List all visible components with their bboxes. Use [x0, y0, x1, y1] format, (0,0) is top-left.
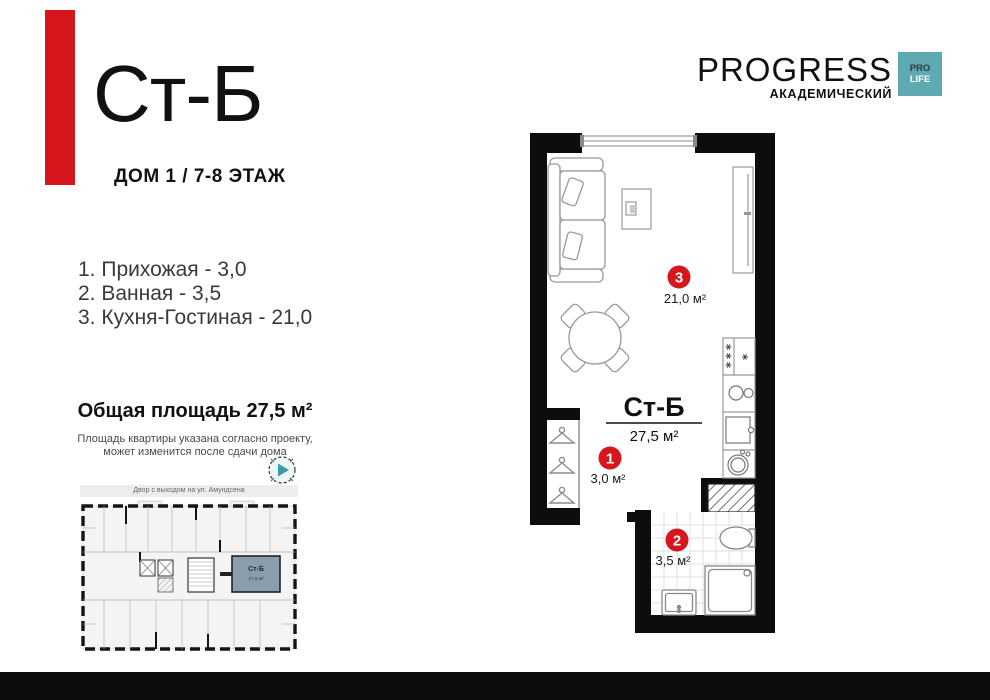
logo-brand: PROGRESS — [697, 54, 892, 86]
room-marker-3: 3 21,0 м² — [664, 266, 707, 307]
sofa-icon — [548, 158, 605, 282]
bath-sink-icon — [662, 590, 696, 615]
svg-text:1: 1 — [606, 451, 614, 468]
building-floor-subtitle: ДОМ 1 / 7-8 ЭТАЖ — [114, 166, 285, 188]
logo-subtitle: АКАДЕМИЧЕСКИЙ — [697, 87, 892, 101]
wardrobe-tv-icon — [733, 167, 753, 273]
kitchen-counter-icon — [723, 338, 755, 478]
room-list-item: 2. Ванная - 3,5 — [78, 282, 312, 306]
room-area-3: 21,0 м² — [664, 291, 707, 306]
footer-bar — [0, 672, 990, 700]
toilet-icon — [720, 527, 755, 549]
hanger-icon — [550, 457, 574, 473]
vent-shaft-icon — [708, 484, 755, 512]
desk-icon — [622, 189, 651, 229]
kitchen-sink-icon — [726, 417, 754, 443]
flat-code-title: Ст-Б — [93, 48, 263, 140]
room-list: 1. Прихожая - 3,0 2. Ванная - 3,5 3. Кух… — [78, 258, 312, 330]
hanger-icon — [550, 427, 574, 443]
room-list-item: 3. Кухня-Гостиная - 21,0 — [78, 306, 312, 330]
flat-brochure-page: Ст-Б ДОМ 1 / 7-8 ЭТАЖ 1. Прихожая - 3,0 … — [0, 0, 990, 700]
minimap-unit-label: Ст-Б — [248, 566, 264, 573]
plan-area-text: 27,5 м² — [630, 428, 679, 445]
room-area-2: 3,5 м² — [656, 553, 692, 568]
total-area-title: Общая площадь 27,5 м² — [70, 400, 320, 423]
svg-text:2: 2 — [673, 533, 681, 550]
plan-title-text: Ст-Б — [623, 392, 684, 422]
accent-red-bar — [45, 10, 75, 185]
svg-text:3: 3 — [675, 270, 683, 287]
floor-plan: Ст-Б 27,5 м² 1 3,0 м² 2 3,5 м² 3 21,0 м² — [515, 120, 795, 650]
room-area-1: 3,0 м² — [591, 471, 627, 486]
window-icon — [580, 135, 697, 147]
developer-logo: PROGRESS АКАДЕМИЧЕСКИЙ PRO LIFE — [697, 52, 942, 101]
site-plan-caption: Двор с выходом на ул. Амундсена — [80, 485, 298, 497]
dining-table-icon — [560, 303, 631, 374]
shower-icon — [705, 566, 755, 615]
staircase-icon — [188, 558, 214, 592]
hanger-icon — [550, 487, 574, 503]
room-list-item: 1. Прихожая - 3,0 — [78, 258, 312, 282]
site-plan-minimap: Ст-Б 27,5 м² — [80, 500, 298, 653]
plan-unit-title: Ст-Б 27,5 м² — [606, 392, 702, 445]
minimap-unit-area: 27,5 м² — [249, 576, 264, 581]
room-marker-1: 1 3,0 м² — [591, 447, 627, 487]
logo-badge: PRO LIFE — [898, 52, 942, 96]
